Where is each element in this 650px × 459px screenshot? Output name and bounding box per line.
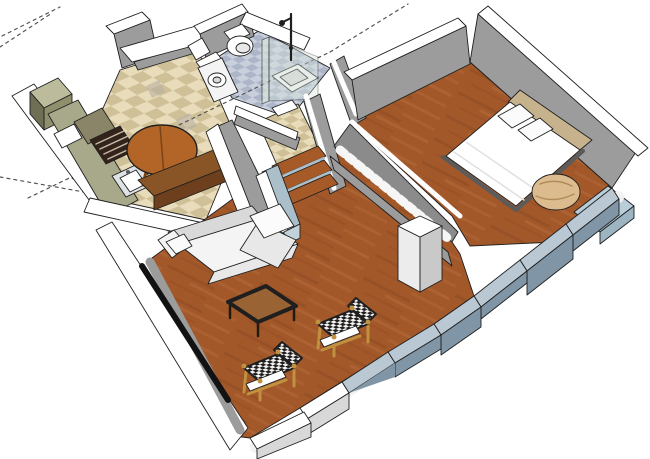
toilet-seat bbox=[236, 43, 250, 53]
shower-glass-panel bbox=[262, 37, 269, 104]
wicker-knob bbox=[242, 364, 247, 369]
wicker-knob bbox=[316, 320, 321, 325]
column bbox=[398, 216, 442, 292]
column-west-face bbox=[398, 226, 420, 292]
floorplan-canvas bbox=[0, 0, 650, 459]
axis-line bbox=[2, 7, 60, 36]
vanity-sink-drain bbox=[213, 77, 221, 83]
wicker-knob bbox=[332, 335, 337, 340]
shower-knob bbox=[289, 46, 293, 50]
kitchen-faucet bbox=[126, 170, 130, 174]
wicker-knob bbox=[366, 320, 371, 325]
scene-root bbox=[0, 4, 648, 459]
beanbag-chair bbox=[532, 174, 580, 210]
shower-head bbox=[279, 20, 285, 26]
wicker-knob bbox=[292, 364, 297, 369]
wicker-knob bbox=[276, 350, 281, 355]
wicker-knob bbox=[258, 379, 263, 384]
wicker-knob bbox=[350, 306, 355, 311]
axis-line bbox=[330, 4, 408, 52]
shower-glass-panel bbox=[269, 37, 318, 101]
floorplan-render bbox=[0, 0, 650, 459]
axis-line bbox=[0, 13, 52, 47]
column-east-face bbox=[420, 226, 442, 292]
